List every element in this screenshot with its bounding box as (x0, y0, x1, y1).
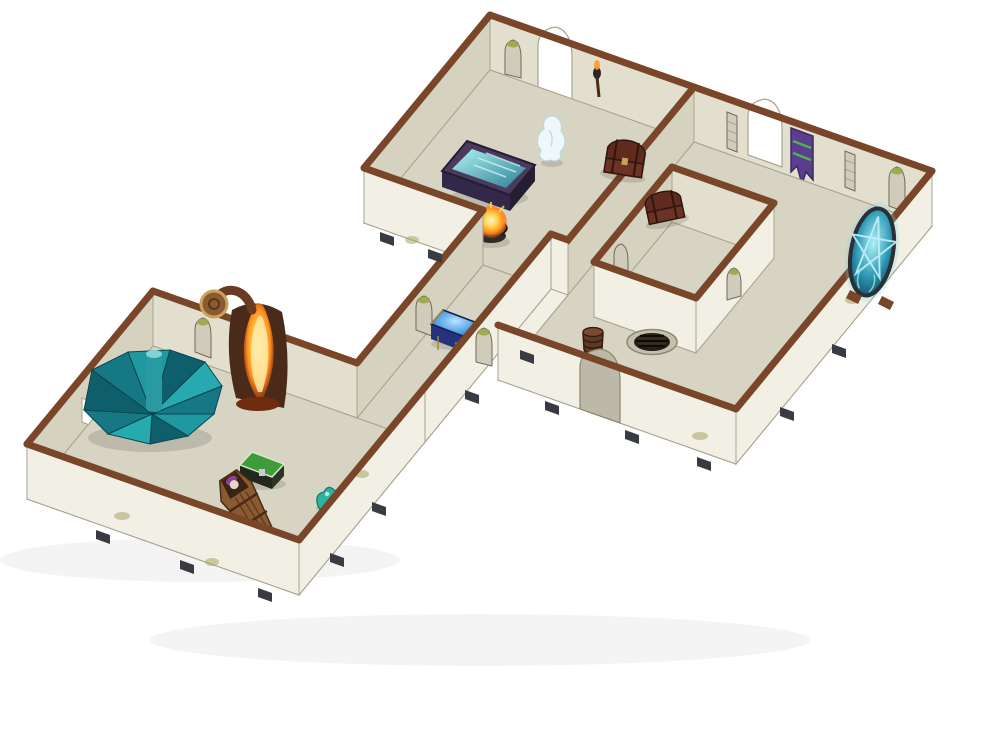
chest-lock (621, 158, 628, 166)
moss-patch (891, 168, 903, 175)
hanging-shield (201, 291, 227, 317)
moss-patch (405, 236, 419, 244)
moss-patch (729, 269, 739, 275)
moss-patch (114, 512, 130, 520)
photo-stage: Photograph of a painted modular dungeon … (0, 0, 1000, 750)
staircase-pole (146, 350, 162, 412)
portal-stand-foot (878, 296, 894, 310)
moss-patch (692, 432, 708, 440)
moss-patch (418, 297, 430, 304)
floor-well-grate (627, 330, 677, 355)
moss-patch (205, 558, 219, 566)
wall-grate (727, 112, 737, 152)
spiral-staircase (84, 350, 222, 452)
moss-patch (197, 319, 209, 326)
chest-lock (259, 469, 265, 476)
embers (236, 397, 280, 411)
crypt-south-wall-stub (551, 234, 568, 295)
dungeon-terrain-photo (0, 0, 1000, 750)
ground-shadow (150, 614, 810, 666)
moss-patch (478, 329, 490, 336)
moss-patch (507, 41, 519, 48)
wall-grate (845, 151, 855, 191)
